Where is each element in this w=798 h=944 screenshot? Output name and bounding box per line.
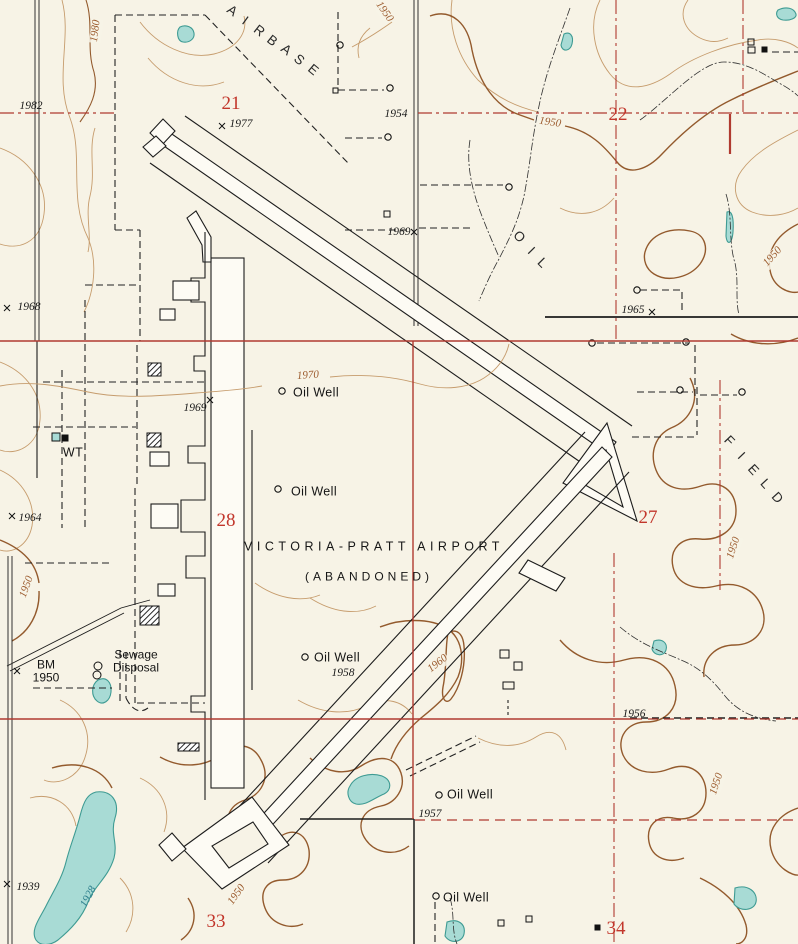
building-outline [498, 920, 504, 926]
tank-outline [503, 682, 514, 689]
pond-topright [777, 8, 796, 20]
hatched-building [147, 433, 161, 447]
building [158, 584, 175, 596]
apron-edge [181, 232, 205, 800]
water-tank [52, 433, 60, 441]
section-grid-lines [0, 0, 798, 944]
runway-zone-line [268, 472, 629, 863]
pond-north [178, 26, 195, 42]
contour-1970 [0, 344, 509, 396]
hatched-building [148, 363, 161, 376]
runway-complex [143, 116, 637, 889]
pond-sewage [93, 679, 111, 703]
building-outline [748, 39, 754, 45]
buildings [52, 39, 767, 930]
pond-south [348, 774, 390, 804]
lake-southwest [34, 792, 116, 944]
roads [7, 0, 798, 944]
runway-zone-line [185, 116, 632, 426]
runway-ne-sw [241, 447, 612, 848]
runway-ns-top-connector [187, 211, 211, 262]
runway-zone-line [224, 432, 585, 823]
sewage-tank [93, 671, 101, 679]
building [160, 309, 175, 320]
taxiway-stub [519, 560, 565, 591]
building-outline [384, 211, 390, 217]
building [173, 281, 199, 300]
building-solid [595, 925, 600, 930]
building-solid [62, 435, 68, 441]
hatched-building [178, 743, 199, 751]
oil-well-symbols [275, 42, 745, 899]
sewage-tank [94, 662, 102, 670]
building-solid [762, 47, 767, 52]
map-artwork [0, 0, 798, 944]
topo-map: VICTORIA-PRATT AIRPORT (ABANDONED) AIRBA… [0, 0, 798, 944]
runway-north-south [211, 258, 244, 788]
unimproved-roads [25, 12, 798, 944]
index-contour-lines [0, 0, 798, 944]
hatched-building [140, 606, 159, 625]
turnaround-sw-tab [159, 833, 186, 861]
building-outline [333, 88, 338, 93]
building [150, 452, 169, 466]
intermittent-streams [450, 8, 798, 944]
building [151, 504, 178, 528]
tank-outline [514, 662, 522, 670]
building-outline [748, 47, 755, 53]
building-outline [526, 916, 532, 922]
tank-outline [500, 650, 509, 658]
